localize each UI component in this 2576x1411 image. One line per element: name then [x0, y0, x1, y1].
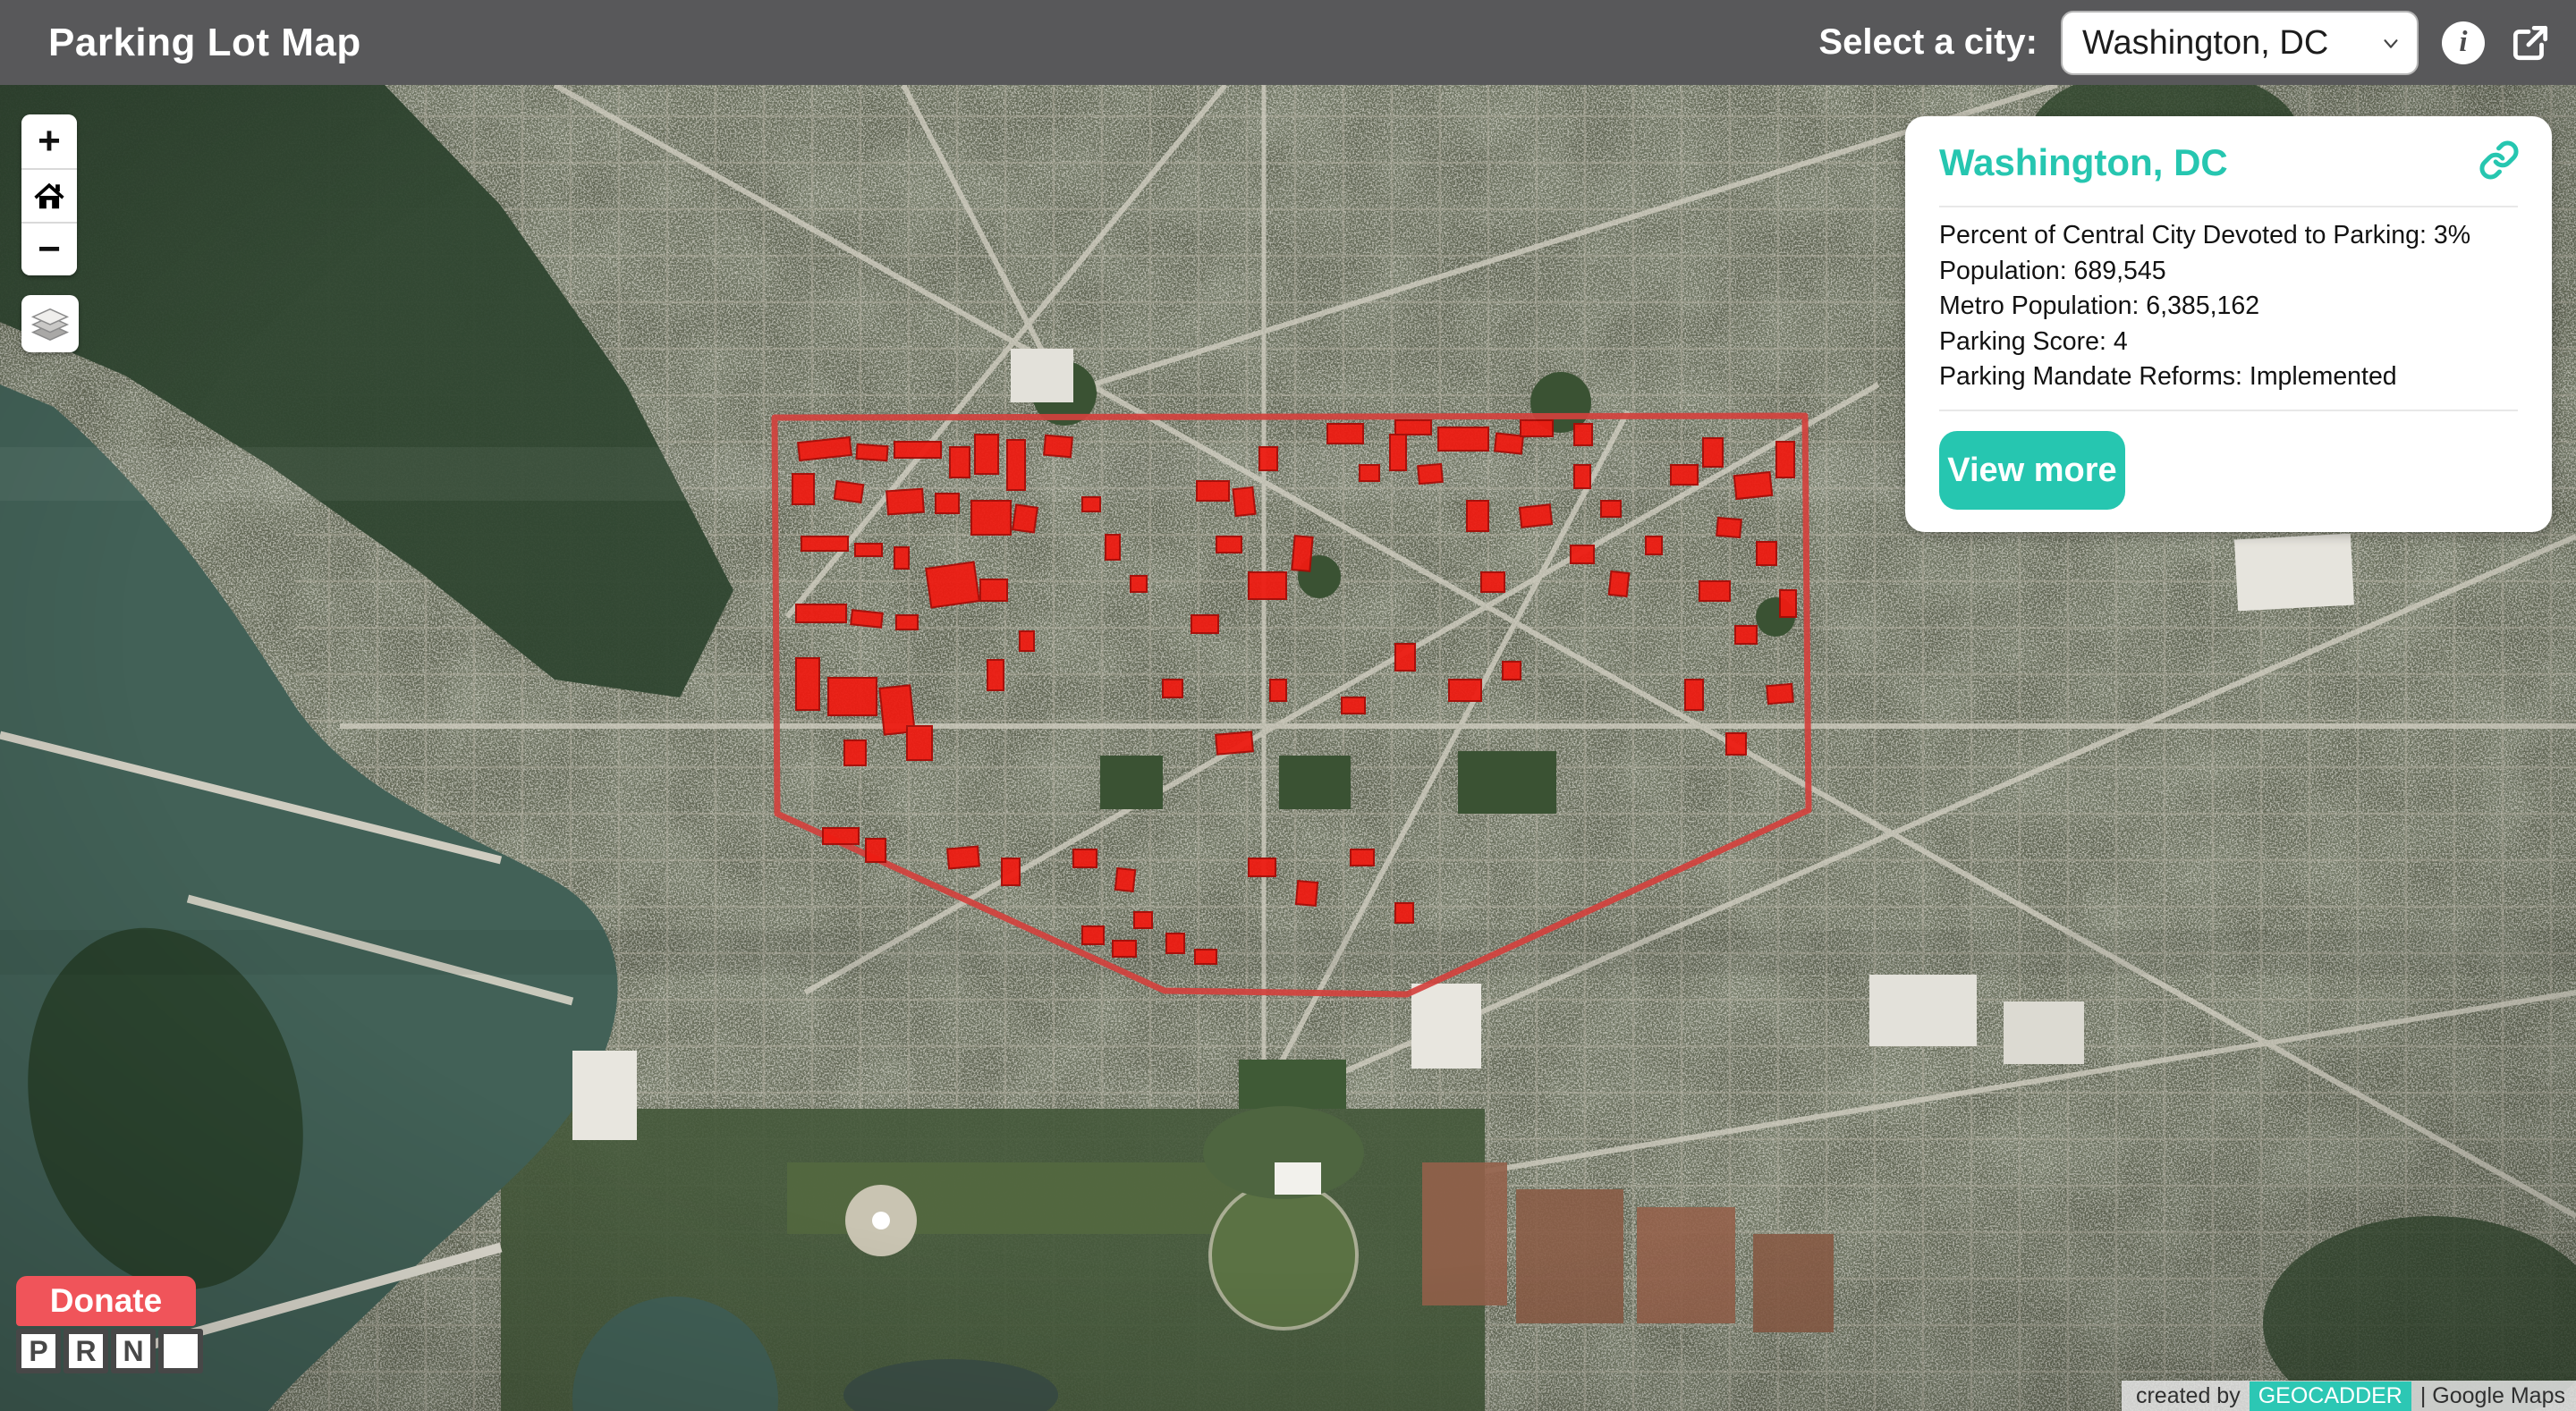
top-bar: Parking Lot Map Select a city: Washingto…	[0, 0, 2576, 85]
zoom-in-button[interactable]: +	[21, 114, 77, 168]
map-zoom-controls: + −	[21, 114, 77, 275]
stat-line: Metro Population: 6,385,162	[1939, 289, 2525, 325]
home-icon	[32, 179, 66, 213]
plus-icon: +	[38, 119, 61, 164]
stat-line: Percent of Central City Devoted to Parki…	[1939, 218, 2525, 254]
city-select-wrap: Washington, DC	[2061, 11, 2419, 75]
info-button[interactable]: i	[2442, 21, 2485, 64]
stat-line: Parking Mandate Reforms: Implemented	[1939, 359, 2525, 395]
donate-button[interactable]: Donate	[16, 1276, 196, 1326]
prn-blank-tile[interactable]	[158, 1329, 203, 1373]
layers-icon	[30, 303, 71, 344]
prn-letter-tile[interactable]: N	[111, 1329, 156, 1373]
city-select-label: Select a city:	[1818, 22, 2038, 63]
home-button[interactable]	[21, 168, 77, 222]
view-more-button[interactable]: View more	[1939, 431, 2125, 510]
minus-icon: −	[38, 227, 61, 272]
city-info-card: Washington, DC Percent of Central City D…	[1905, 116, 2552, 532]
city-stats: Percent of Central City Devoted to Parki…	[1939, 218, 2525, 395]
map-attribution: created by GEOCADDER | Google Maps	[2122, 1381, 2576, 1411]
stat-line: Population: 689,545	[1939, 254, 2525, 290]
stat-line: Parking Score: 4	[1939, 325, 2525, 360]
zoom-out-button[interactable]: −	[21, 222, 77, 275]
link-icon[interactable]	[2479, 139, 2520, 181]
prn-letter-tile[interactable]: R	[64, 1329, 108, 1373]
created-by-text: created by	[2136, 1383, 2241, 1409]
app-title: Parking Lot Map	[48, 21, 361, 65]
info-icon: i	[2442, 21, 2485, 64]
card-divider-top	[1939, 206, 2518, 207]
google-maps-text: | Google Maps	[2420, 1383, 2565, 1409]
external-link-icon	[2508, 21, 2553, 65]
prn-letter-tile[interactable]: P	[16, 1329, 61, 1373]
geocadder-link[interactable]: GEOCADDER	[2250, 1381, 2411, 1411]
prn-logo[interactable]: PRN	[16, 1329, 203, 1373]
card-city-title: Washington, DC	[1939, 141, 2228, 184]
card-divider-bottom	[1939, 410, 2518, 411]
share-button[interactable]	[2508, 21, 2553, 65]
city-select[interactable]: Washington, DC	[2061, 11, 2419, 75]
parking-lot-map-app: Parking Lot Map Select a city: Washingto…	[0, 0, 2576, 1411]
layers-button[interactable]	[21, 295, 79, 352]
